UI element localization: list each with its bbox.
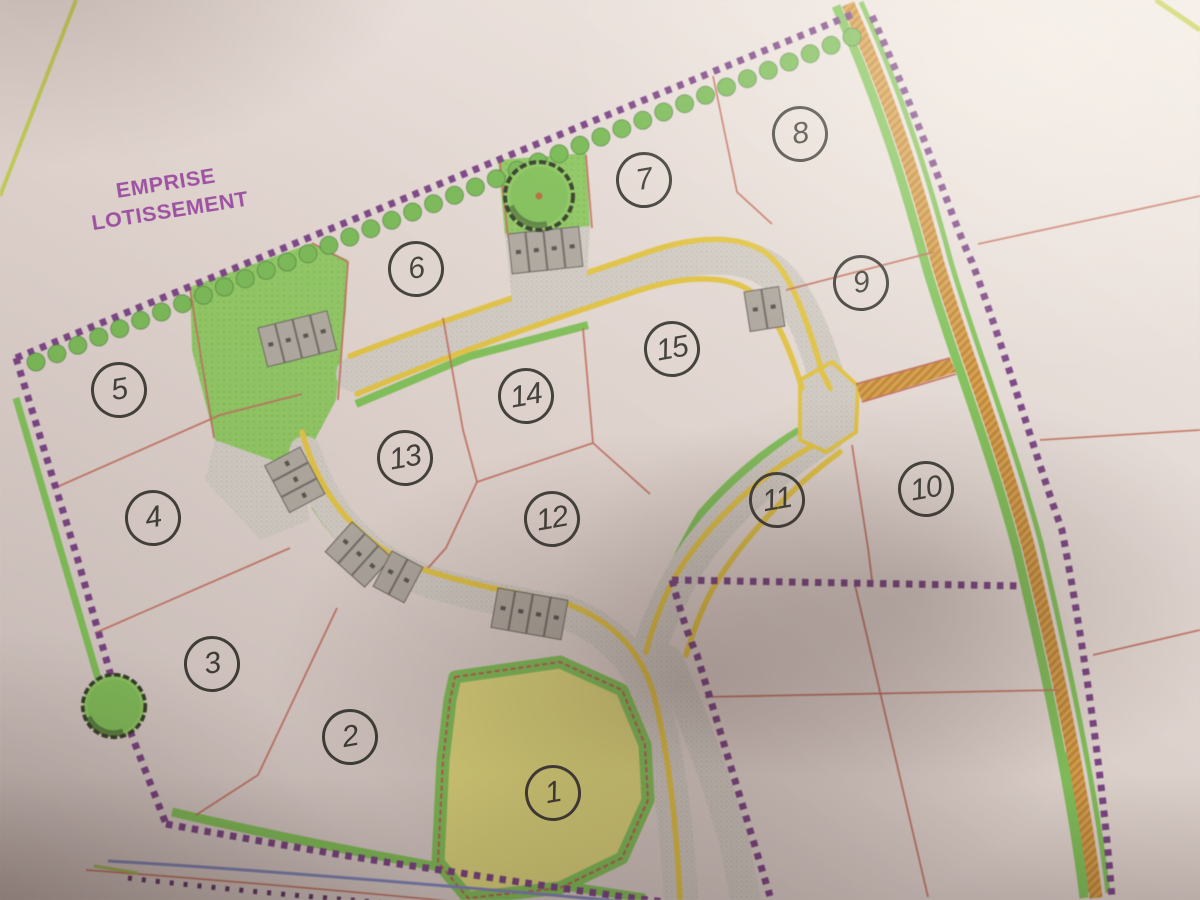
lot-number: 1 xyxy=(542,775,563,811)
photographed-site-plan: EMPRISE LOTISSEMENT 12345678910111213141… xyxy=(0,0,1200,900)
lot-badge-3: 3 xyxy=(180,632,245,697)
lot-number: 13 xyxy=(387,439,424,478)
lot-badge-5: 5 xyxy=(87,358,152,423)
lot-badge-12: 12 xyxy=(520,487,585,552)
lot-badge-2: 2 xyxy=(318,705,383,770)
lot-number: 12 xyxy=(534,500,571,539)
lot-number: 14 xyxy=(508,377,545,416)
lot-number: 8 xyxy=(789,116,810,152)
lot-number: 9 xyxy=(850,265,871,301)
lot-number: 6 xyxy=(405,251,426,287)
lot-badge-6: 6 xyxy=(384,237,449,302)
lot-badge-15: 15 xyxy=(640,317,705,382)
lot-number: 11 xyxy=(760,481,795,520)
lot-badge-8: 8 xyxy=(768,102,833,167)
lot-badges-layer: 123456789101112131415 xyxy=(0,0,1200,900)
lot-badge-1: 1 xyxy=(521,761,586,826)
lot-number: 7 xyxy=(633,162,654,198)
lot-number: 10 xyxy=(908,470,945,509)
lot-number: 4 xyxy=(142,500,163,536)
lot-number: 3 xyxy=(201,646,222,682)
lot-badge-14: 14 xyxy=(494,364,559,429)
lot-badge-7: 7 xyxy=(612,148,677,213)
lot-badge-11: 11 xyxy=(745,468,810,533)
lot-number: 15 xyxy=(654,330,691,369)
lot-badge-9: 9 xyxy=(829,251,894,316)
lot-number: 2 xyxy=(339,719,360,755)
lot-badge-10: 10 xyxy=(894,457,959,522)
lot-number: 5 xyxy=(108,372,129,408)
lot-badge-4: 4 xyxy=(121,486,186,551)
lot-badge-13: 13 xyxy=(373,426,438,491)
